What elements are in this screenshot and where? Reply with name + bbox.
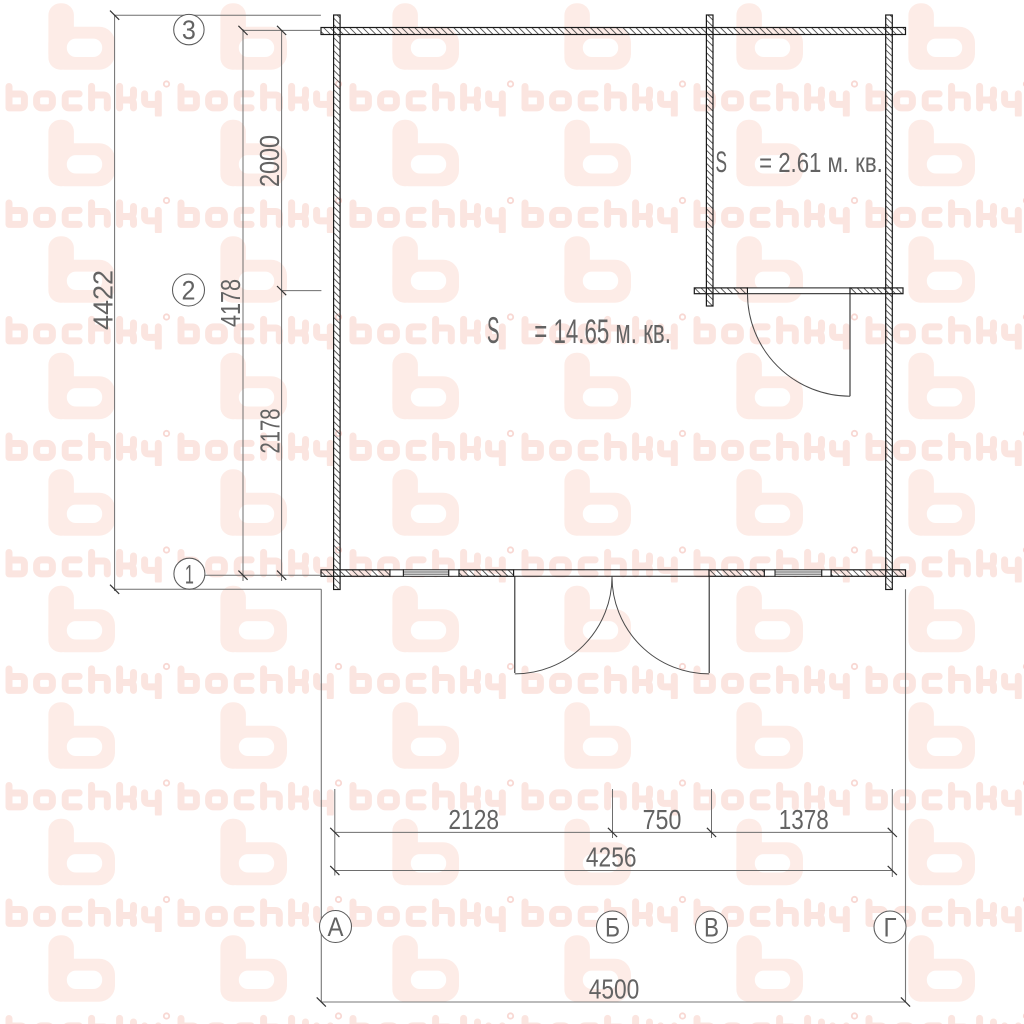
svg-text:S: S: [487, 310, 500, 351]
svg-text:4256: 4256: [586, 841, 637, 872]
svg-text:= 14.65 м. кв.: = 14.65 м. кв.: [534, 313, 671, 351]
svg-text:1: 1: [185, 559, 194, 589]
svg-text:В: В: [704, 913, 719, 943]
svg-text:2128: 2128: [448, 804, 499, 835]
svg-text:1378: 1378: [779, 804, 829, 835]
svg-text:4178: 4178: [215, 279, 246, 327]
svg-text:Г: Г: [884, 913, 897, 943]
svg-text:750: 750: [643, 804, 682, 835]
svg-text:Б: Б: [605, 913, 620, 943]
svg-text:4422: 4422: [88, 270, 119, 330]
svg-text:= 2.61 м. кв.: = 2.61 м. кв.: [759, 147, 883, 178]
svg-text:2000: 2000: [254, 135, 285, 187]
svg-text:2: 2: [182, 276, 196, 306]
svg-text:3: 3: [182, 15, 196, 45]
svg-text:S: S: [716, 146, 728, 179]
svg-text:А: А: [328, 912, 344, 942]
svg-text:2178: 2178: [255, 409, 286, 454]
svg-text:4500: 4500: [589, 974, 640, 1005]
